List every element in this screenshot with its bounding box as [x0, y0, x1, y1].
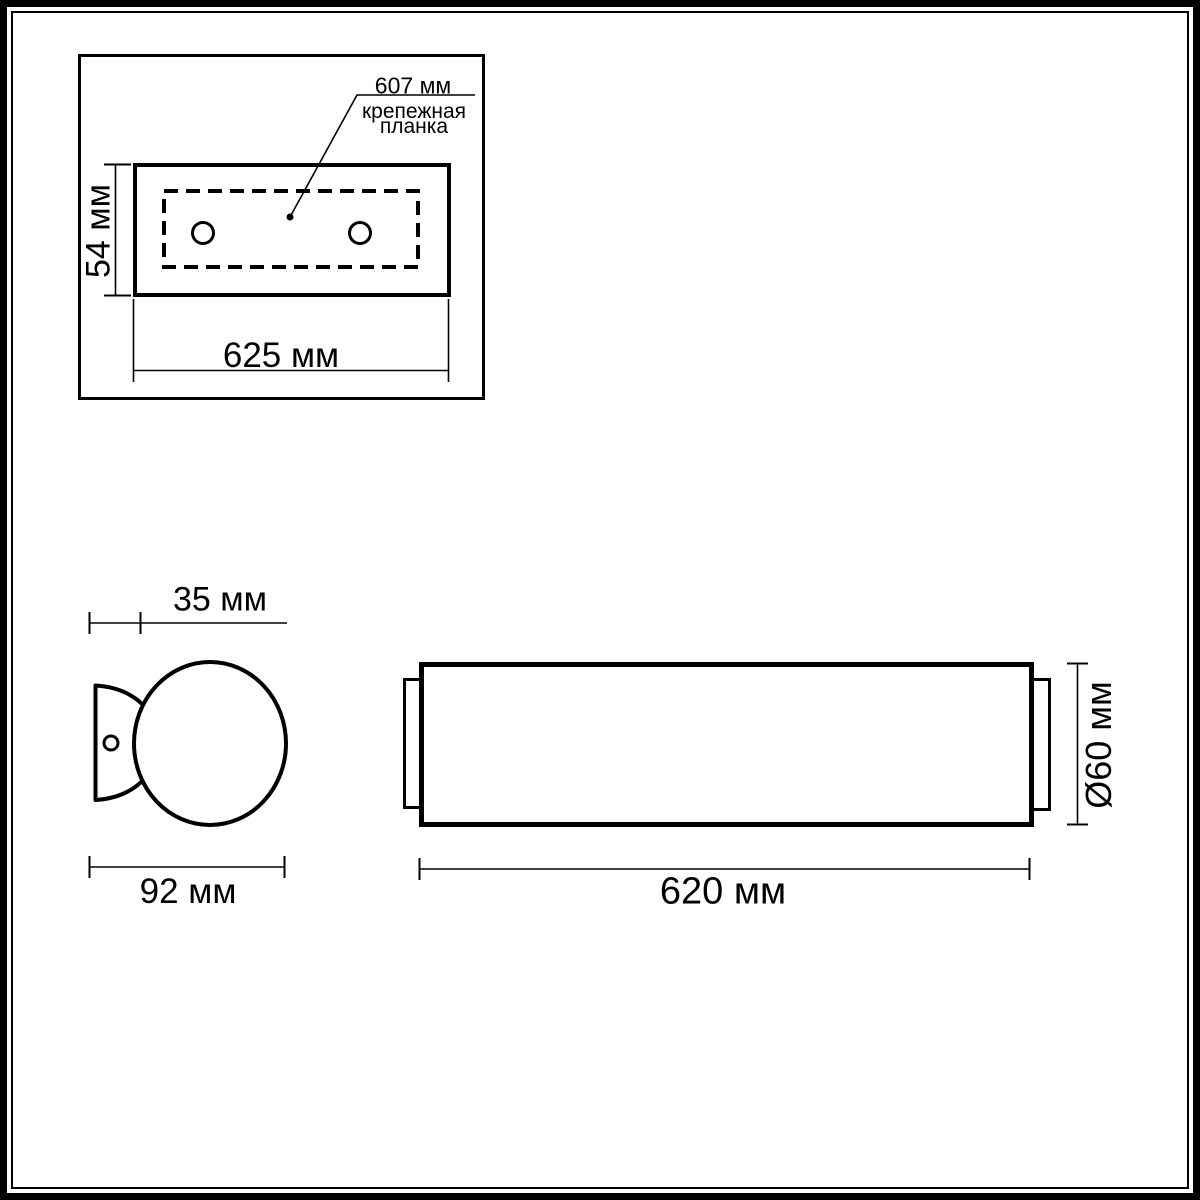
page-outer-frame: [0, 0, 1200, 1200]
technical-drawing-page: 607 мм крепежная планка 54 мм 625 мм 35 …: [0, 0, 1200, 1200]
